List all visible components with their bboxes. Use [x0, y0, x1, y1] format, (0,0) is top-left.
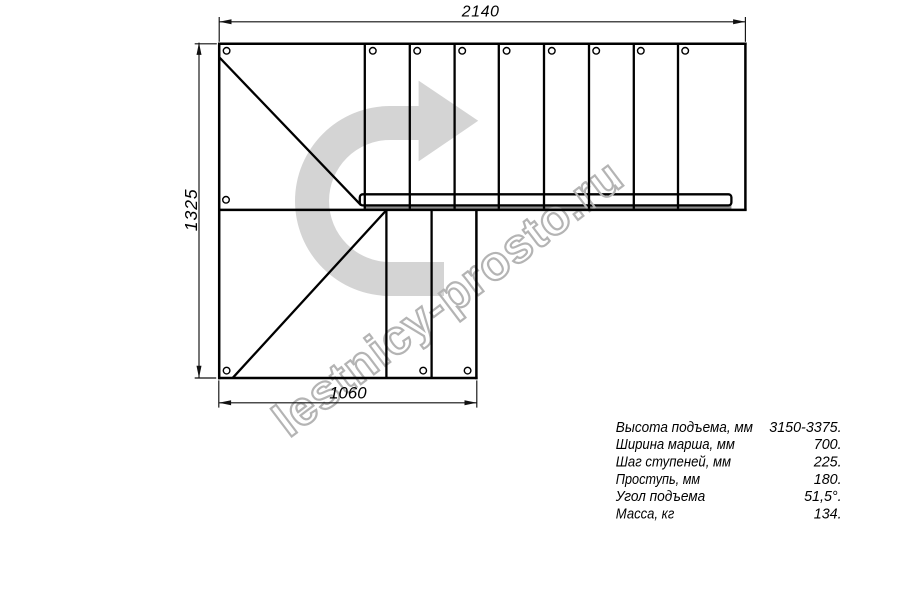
svg-text:700.: 700. [814, 437, 842, 453]
svg-text:134.: 134. [814, 506, 842, 522]
svg-text:Ширина марша, мм: Ширина марша, мм [616, 437, 735, 453]
svg-text:2140: 2140 [461, 4, 500, 21]
svg-text:225.: 225. [813, 455, 842, 471]
svg-text:1060: 1060 [329, 384, 367, 403]
svg-text:Высота подъема, мм: Высота подъема, мм [616, 420, 753, 436]
svg-text:1325: 1325 [181, 188, 201, 231]
svg-text:Проступь, мм: Проступь, мм [616, 472, 700, 488]
svg-text:Шаг ступеней, мм: Шаг ступеней, мм [616, 455, 731, 471]
svg-text:Угол подъема: Угол подъема [615, 489, 706, 505]
svg-text:Масса, кг: Масса, кг [616, 506, 675, 522]
svg-text:3150-3375.: 3150-3375. [769, 420, 841, 436]
svg-text:180.: 180. [814, 472, 842, 488]
svg-text:51,5°.: 51,5°. [804, 489, 842, 505]
